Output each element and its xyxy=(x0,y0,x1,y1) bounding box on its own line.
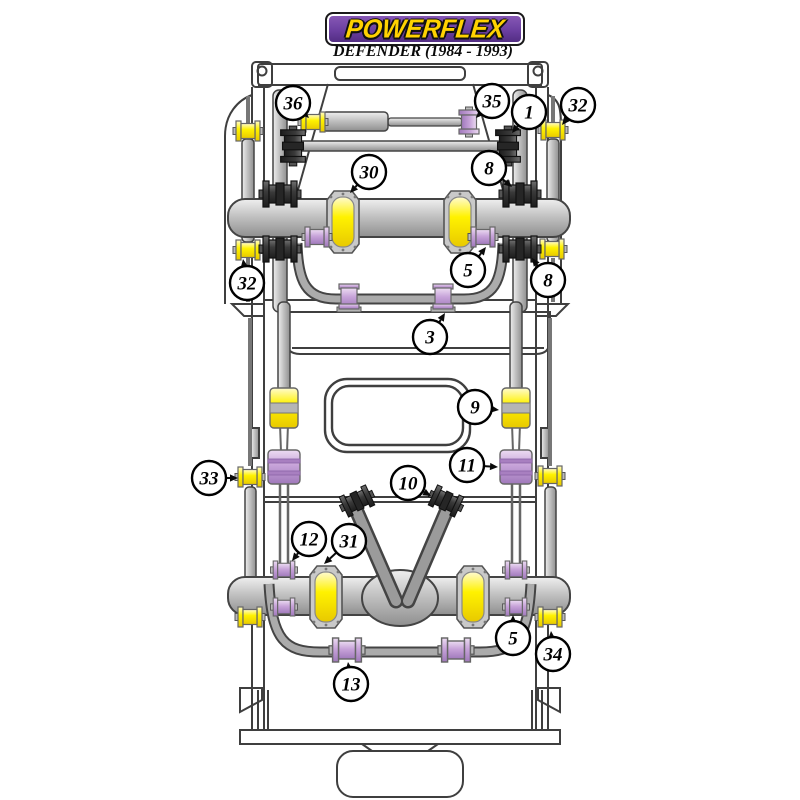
callout-32[interactable]: 32 xyxy=(230,259,264,300)
left-shock-bracket xyxy=(251,428,259,458)
front-arb-clamp-left xyxy=(337,284,361,312)
svg-text:5: 5 xyxy=(463,261,473,282)
rear-arb-bushing-left xyxy=(329,638,365,662)
powerflex-logo-text: POWERFLEX xyxy=(344,14,506,44)
svg-text:8: 8 xyxy=(543,271,553,292)
diagram-subtitle: DEFENDER (1984 - 1993) xyxy=(305,43,541,61)
rear-shock-upper-bushing-right xyxy=(535,466,565,486)
transmission-tunnel xyxy=(325,379,470,452)
svg-text:13: 13 xyxy=(342,675,361,696)
rear-shock-lower-bushing-right xyxy=(535,607,565,627)
chassis-diagram: 3635132308532839113310123153413 xyxy=(0,0,800,800)
right-outrigger xyxy=(536,304,568,316)
callout-34[interactable]: 34 xyxy=(536,631,570,671)
svg-text:34: 34 xyxy=(543,645,563,666)
left-outrigger xyxy=(232,304,264,316)
front-axle-purple-bushing-right xyxy=(468,227,498,247)
callout-31[interactable]: 31 xyxy=(324,524,366,564)
svg-text:31: 31 xyxy=(339,532,359,553)
front-bumper xyxy=(252,62,548,87)
svg-text:10: 10 xyxy=(399,474,419,495)
callout-36[interactable]: 36 xyxy=(276,86,310,120)
svg-text:1: 1 xyxy=(524,103,534,124)
trailing-arm-yellow-bushing-left xyxy=(270,388,298,428)
svg-text:35: 35 xyxy=(482,92,503,113)
callout-35[interactable]: 35 xyxy=(475,84,509,118)
rear-crossmember xyxy=(240,688,560,797)
svg-text:12: 12 xyxy=(300,530,320,551)
callout-13[interactable]: 13 xyxy=(334,662,368,701)
svg-text:36: 36 xyxy=(283,94,304,115)
tow-frame xyxy=(337,751,463,797)
radius-arm-bushing xyxy=(499,236,541,262)
trailing-arm-axle-bushing xyxy=(271,598,298,616)
callout-11[interactable]: 11 xyxy=(450,448,498,482)
drag-link xyxy=(298,141,502,151)
steering-damper-purple-bushing xyxy=(459,107,479,137)
trailing-arm-purple-bushing-right xyxy=(500,450,532,484)
svg-text:8: 8 xyxy=(484,159,494,180)
trailing-arm-axle-bushing xyxy=(503,598,530,616)
svg-text:33: 33 xyxy=(199,469,219,490)
svg-text:32: 32 xyxy=(568,96,589,117)
diagram-page: 3635132308532839113310123153413 POWERFLE… xyxy=(0,0,800,800)
powerflex-logo: POWERFLEX xyxy=(325,12,525,46)
rear-shock-lower-bushing-left xyxy=(235,607,265,627)
steering-damper xyxy=(322,112,462,131)
callout-9[interactable]: 9 xyxy=(458,390,499,424)
trailing-arm-purple-bushing-left xyxy=(268,450,300,484)
radius-arm-bushing xyxy=(259,181,301,207)
trailing-arm-axle-bushing xyxy=(271,561,298,579)
front-arb-clamp-right xyxy=(431,284,455,312)
right-shock-bracket xyxy=(541,428,549,458)
front-shock-upper-bushing-left xyxy=(233,121,263,141)
callout-32[interactable]: 32 xyxy=(561,88,595,125)
radius-arm-bushing xyxy=(259,236,301,262)
svg-text:9: 9 xyxy=(470,398,480,419)
callout-10[interactable]: 10 xyxy=(391,466,431,500)
svg-text:11: 11 xyxy=(458,456,476,477)
svg-text:30: 30 xyxy=(359,163,380,184)
svg-text:5: 5 xyxy=(508,629,518,650)
callout-30[interactable]: 30 xyxy=(350,155,386,193)
callout-12[interactable]: 12 xyxy=(292,522,326,561)
rear-shock-upper-bushing-left xyxy=(235,467,265,487)
front-axle-purple-bushing-left xyxy=(302,227,332,247)
drag-link-end-bushing-left xyxy=(281,126,306,166)
trailing-arm-axle-bushing xyxy=(503,561,530,579)
rear-arb-bushing-right xyxy=(438,638,474,662)
callout-33[interactable]: 33 xyxy=(192,461,238,495)
callout-3[interactable]: 3 xyxy=(413,313,447,354)
trailing-arm-yellow-bushing-right xyxy=(502,388,530,428)
svg-text:3: 3 xyxy=(424,328,435,349)
callout-8[interactable]: 8 xyxy=(531,258,565,297)
svg-text:32: 32 xyxy=(237,274,258,295)
